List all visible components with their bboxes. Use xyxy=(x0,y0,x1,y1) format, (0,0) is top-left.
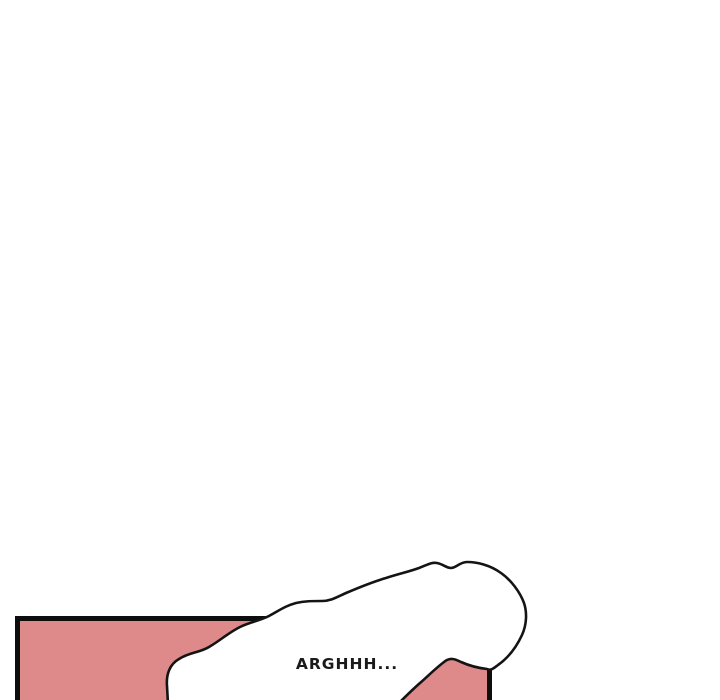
comic-page: ARGHHH... xyxy=(0,0,720,700)
speech-bubble-text: ARGHHH... xyxy=(296,655,398,673)
comic-strip-canvas: ARGHHH... xyxy=(0,0,720,700)
